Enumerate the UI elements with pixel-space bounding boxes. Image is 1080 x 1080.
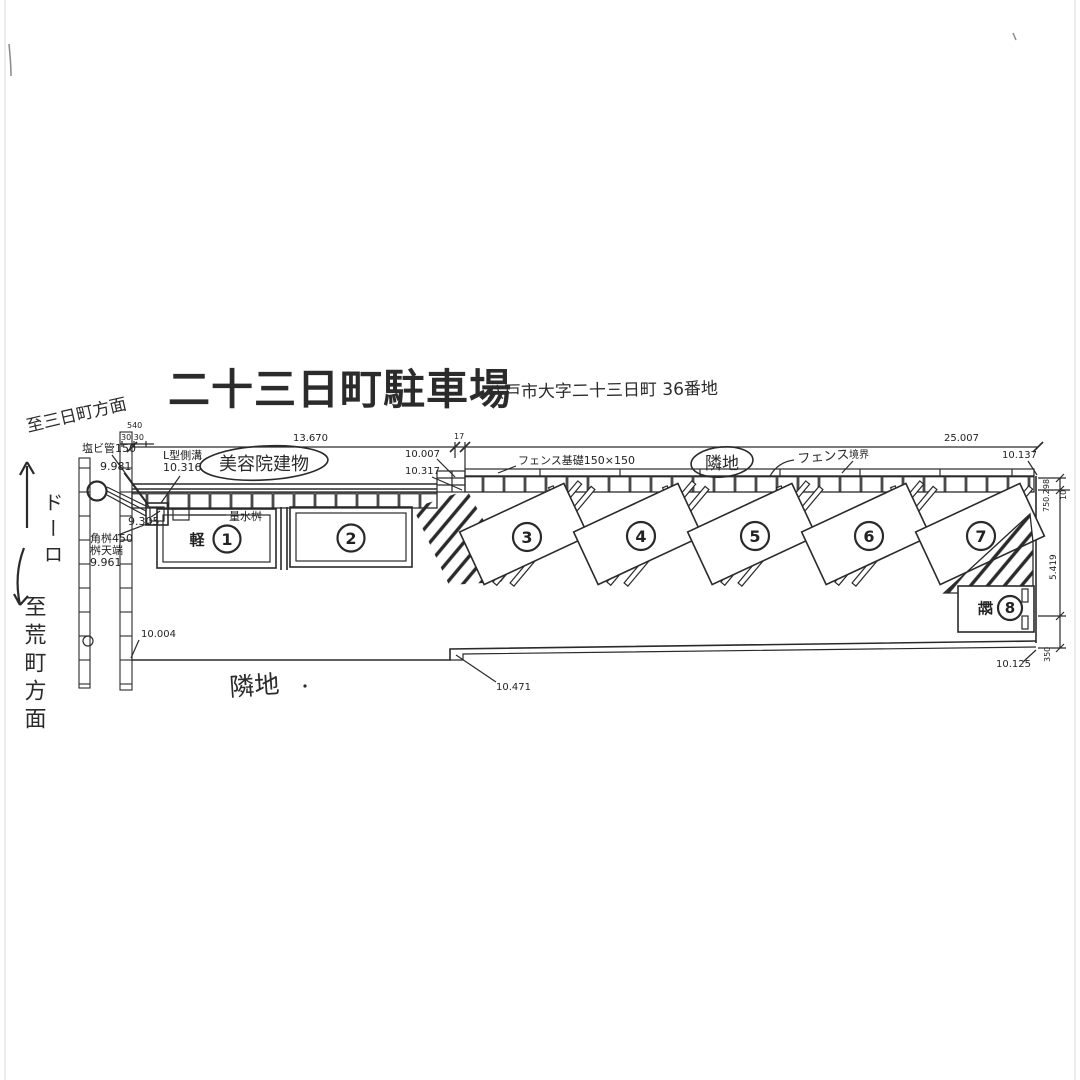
level-10137: 10.137 [1002, 450, 1037, 461]
label-adjacent-top: 隣地 [705, 454, 739, 474]
label-fence-foundation: フェンス基礎150×150 [518, 454, 635, 467]
parking-space-8: 軽 8 [958, 586, 1034, 632]
space-number-3: 3 [521, 528, 532, 547]
level-10471: 10.471 [496, 682, 531, 693]
bottom-boundary [131, 641, 1036, 660]
wheel-stop-top [1022, 589, 1028, 602]
kei-label-8: 軽 [976, 600, 994, 616]
dim-25007: 25.007 [944, 433, 979, 444]
label-pvc-pipe: 塩ビ管150 [82, 441, 136, 455]
label-adjacent-bottom: 隣地 [228, 670, 280, 702]
label-l-gutter: L型側溝 [163, 448, 202, 462]
bottom-boundary-2 [450, 647, 1036, 660]
dim-17: 17 [454, 432, 464, 441]
level-10125: 10.125 [996, 659, 1031, 670]
dim-10: 10 [1059, 490, 1068, 500]
label-corner-basin: 角桝450 [90, 531, 133, 545]
site-address: 八戸市大字二十三日町 36番地 [487, 379, 718, 403]
curb-left [132, 492, 437, 508]
level-10004: 10.004 [141, 629, 176, 640]
space-number-1: 1 [221, 530, 232, 549]
space-number-6: 6 [863, 527, 874, 546]
space-divider-1-2 [281, 507, 287, 570]
level-9961: 9.961 [90, 556, 122, 569]
fence-squiggle [770, 460, 794, 476]
dim-13670: 13.670 [293, 433, 328, 444]
space-number-5: 5 [749, 527, 760, 546]
level-9981: 9.981 [100, 460, 132, 473]
label-boundary: 境界 [849, 448, 869, 461]
level-10316: 10.316 [163, 461, 202, 474]
annotation-to-aramachi: 至荒町方面 [21, 595, 47, 735]
dim-540: 540 [127, 421, 142, 430]
level-10007: 10.007 [405, 449, 440, 460]
dim-5419: 5.419 [1049, 554, 1059, 580]
label-fence: フェンス [797, 448, 850, 467]
adjacent-bottom-dot [303, 684, 306, 687]
space-number-2: 2 [345, 529, 356, 548]
parking-diagram: 二十三日町駐車場 八戸市大字二十三日町 36番地 至三日町方面 ドーロ 至荒町方… [0, 0, 1080, 1080]
page-title: 二十三日町駐車場 [168, 365, 512, 414]
space-number-7: 7 [975, 527, 986, 546]
fence-foundation-ticks [540, 469, 1012, 476]
space-number-4: 4 [635, 527, 646, 546]
dim-750298: 750.298 [1042, 479, 1051, 512]
level-10137-leader [1028, 461, 1037, 475]
label-water-meter: 量水桝 [229, 509, 262, 523]
road-label: ドーロ [40, 492, 64, 570]
annotation-to-mikkamachi: 至三日町方面 [25, 394, 129, 436]
building-wall [132, 484, 437, 489]
parking-space-2: 2 [290, 507, 412, 567]
level-9305: 9.305 [128, 515, 160, 528]
wheel-stop-bottom [1022, 616, 1028, 629]
space-number-8: 8 [1005, 599, 1015, 617]
up-arrow [20, 462, 34, 528]
label-basin-top: 桝天端 [90, 543, 123, 557]
dim-350: 350 [1043, 647, 1052, 662]
dim-30-30: 30 30 [121, 433, 144, 442]
level-10471-leader [456, 655, 496, 682]
kei-label-1: 軽 [189, 531, 205, 549]
beauty-salon-label: 美容院建物 [219, 454, 309, 475]
fence-foundation-line [465, 469, 1034, 476]
level-10317: 10.317 [405, 466, 440, 477]
